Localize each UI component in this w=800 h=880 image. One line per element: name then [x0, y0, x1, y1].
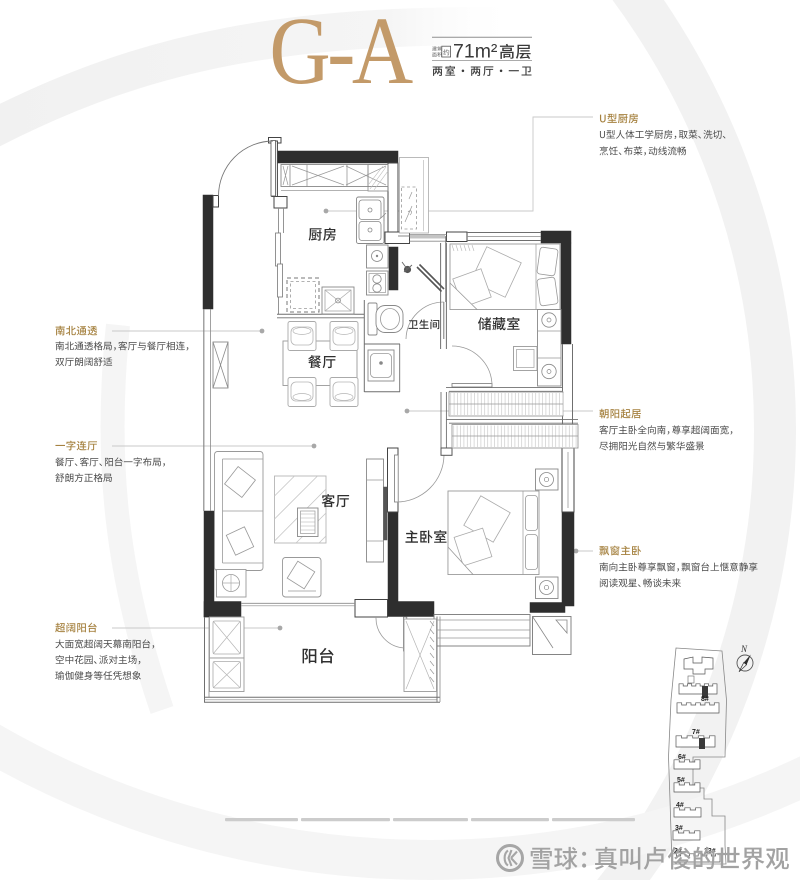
svg-text:71m²: 71m² [453, 41, 498, 63]
svg-text:G-A: G-A [269, 0, 412, 104]
svg-text:8#: 8# [701, 696, 709, 703]
svg-text:N: N [740, 644, 748, 654]
svg-text:7#: 7# [692, 729, 700, 736]
